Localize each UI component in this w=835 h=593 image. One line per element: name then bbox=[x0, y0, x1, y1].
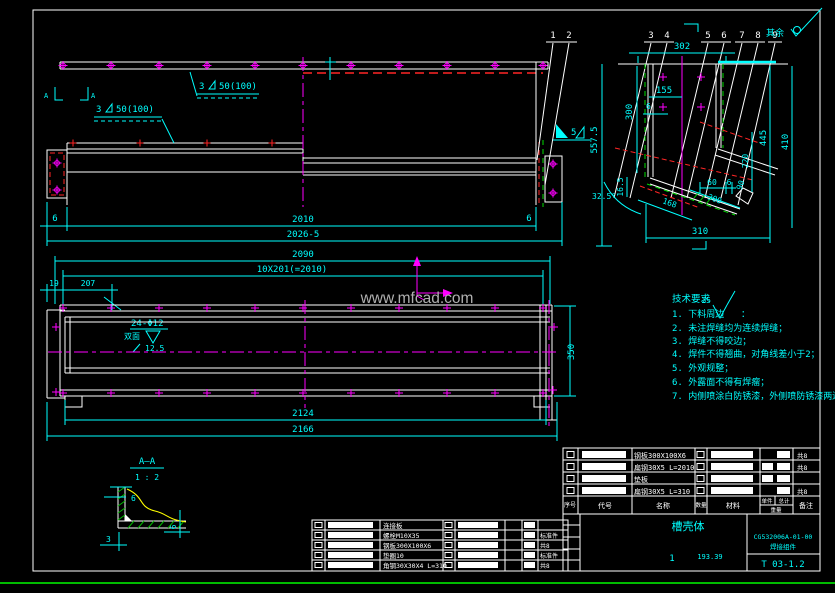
section-cut-marks: A A bbox=[44, 87, 96, 100]
detail-title: A—A bbox=[139, 457, 156, 467]
header-seq: 序号 bbox=[564, 501, 576, 509]
dim-bottom: 310 bbox=[692, 227, 708, 237]
plan-dimensions-top: 2090 10X201(=2010) 19 207 bbox=[40, 250, 550, 310]
bom-row: 角钢30X30X4 L=310共8 bbox=[315, 561, 550, 570]
dim-gap-left: 6 bbox=[52, 214, 57, 224]
bom-row: 连接板 bbox=[315, 521, 535, 530]
weld-a-size: 3 bbox=[96, 105, 101, 115]
plan-view: 2090 10X201(=2010) 19 207 24-Φ12 双面 12.5 bbox=[40, 250, 577, 441]
weld-b-spec: 50(100) bbox=[219, 82, 257, 92]
break-line bbox=[127, 489, 186, 522]
balloon-1: 1 bbox=[550, 31, 555, 41]
bom-name: 角钢30X30X4 L=310 bbox=[383, 561, 447, 570]
dim-6: 6 bbox=[727, 178, 732, 187]
balloon-3: 3 bbox=[648, 31, 653, 41]
weld-c-size: 5 bbox=[571, 128, 576, 138]
bom-name: 连接板 bbox=[383, 521, 403, 530]
dim-plan-inner: 2124 bbox=[292, 409, 314, 419]
weld-fillet bbox=[125, 514, 132, 521]
dim-155: 155 bbox=[656, 86, 672, 96]
sheet-number: T 03-1.2 bbox=[761, 560, 804, 570]
balloon-5: 5 bbox=[705, 31, 710, 41]
balloon-4: 4 bbox=[664, 31, 669, 41]
weld-callout-c: 5 bbox=[552, 124, 590, 140]
parts-list-row: 扁钢30X5 L=310共8 bbox=[567, 487, 808, 496]
countersink-icon bbox=[146, 331, 160, 343]
balloon-2: 2 bbox=[566, 31, 571, 41]
front-view: 3 50(100) 3 50(100) 5 A A bbox=[40, 57, 590, 246]
balloon-8: 8 bbox=[755, 31, 760, 41]
detail-scale: 1 : 2 bbox=[135, 473, 159, 482]
drawing-sheet: 3 50(100) 3 50(100) 5 A A bbox=[0, 0, 835, 593]
weight-value: 193.39 bbox=[697, 553, 722, 561]
dim-165: 16.5 bbox=[616, 177, 625, 196]
part-remark: 共8 bbox=[797, 451, 808, 460]
note-line: 7. 内侧喷涂白防锈漆，外侧喷防锈漆两遍。 bbox=[672, 390, 835, 402]
parts-list-row: 扁钢30X5 L=2010共8 bbox=[567, 463, 808, 472]
bom-name: 垫圈10 bbox=[383, 551, 404, 560]
section-label: A bbox=[91, 92, 96, 100]
dim-detail-3: 3 bbox=[106, 535, 111, 544]
dim-220: 220 bbox=[741, 154, 750, 169]
dim-445: 445 bbox=[759, 130, 769, 146]
front-dimensions: 2010 2026-5 6 6 bbox=[40, 202, 562, 246]
part-name: 扁钢30X5 L=2010 bbox=[634, 463, 694, 472]
part-remark: 共8 bbox=[797, 487, 808, 496]
dim-top-width: 302 bbox=[674, 42, 690, 52]
surface-finish-prefix: 其余 bbox=[766, 27, 784, 39]
dim-angle: 32.5° bbox=[592, 192, 616, 201]
surface-finish-note: 其余 bbox=[766, 8, 822, 39]
bom-row: 钢板300X100X6共8 bbox=[315, 541, 550, 550]
cad-canvas: 3 50(100) 3 50(100) 5 A A bbox=[0, 0, 835, 593]
weld-symbol-icon bbox=[106, 104, 112, 112]
part-name: 扁钢30X5 L=310 bbox=[634, 487, 690, 496]
section-label: A bbox=[44, 92, 49, 100]
dim-60: 60 bbox=[707, 178, 717, 187]
weld-a-spec: 50(100) bbox=[116, 105, 154, 115]
drawing-subtitle: 焊接组件 bbox=[770, 542, 797, 551]
dim-gap-right: 6 bbox=[526, 214, 531, 224]
parts-list-row: 钢板300X100X6共8 bbox=[567, 451, 808, 460]
header-remark: 备注 bbox=[799, 501, 813, 510]
dim-total-height: 557.5 bbox=[590, 126, 600, 153]
header-code: 代号 bbox=[598, 501, 612, 510]
part-remark: 共8 bbox=[797, 463, 808, 472]
title-block: 序号 代号 名称 数量 材料 单件 总计 重量 备注 钢板300X100X6共8… bbox=[563, 448, 820, 571]
note-line: 5. 外观规整； bbox=[672, 362, 733, 374]
hole-callout-side: 双面 bbox=[124, 332, 140, 341]
bom-remark: 共8 bbox=[540, 562, 550, 570]
left-end-plate bbox=[47, 150, 67, 198]
dim-wall: 6 bbox=[646, 102, 651, 111]
dim-plan-outer: 2166 bbox=[292, 425, 314, 435]
dim-plan-overall: 2090 bbox=[292, 250, 314, 260]
header-unit-weight: 单件 bbox=[761, 497, 773, 505]
dim-168: 168 bbox=[661, 196, 678, 209]
balloon-6: 6 bbox=[721, 31, 726, 41]
dim-end-offset: 19 bbox=[49, 279, 59, 288]
note-1-suffix: ： bbox=[741, 310, 750, 320]
dim-plan-pitch: 10X201(=2010) bbox=[257, 265, 327, 275]
bom-name: 钢板300X100X6 bbox=[383, 541, 431, 550]
note-line: 2. 未注焊缝均为连续焊缝； bbox=[672, 322, 787, 334]
weld-symbol-icon bbox=[556, 124, 568, 138]
dim-front-inner: 2010 bbox=[292, 215, 314, 225]
bom-remark: 标准件 bbox=[540, 532, 558, 540]
weld-callout-b: 3 50(100) bbox=[190, 72, 259, 98]
header-material: 材料 bbox=[726, 501, 740, 510]
header-weight: 重量 bbox=[770, 506, 782, 514]
dim-410: 410 bbox=[781, 134, 791, 150]
header-total-weight: 总计 bbox=[778, 497, 790, 505]
dim-first-pitch: 207 bbox=[81, 279, 96, 288]
note-line: 6. 外露面不得有焊瘤； bbox=[672, 376, 769, 388]
part-name: 垫板 bbox=[634, 475, 648, 484]
header-qty: 数量 bbox=[695, 501, 707, 509]
weld-callout-a: 3 50(100) bbox=[94, 104, 174, 143]
bom-name: 螺栓M10X35 bbox=[383, 531, 420, 540]
tech-notes: 技术要求 1. 下料周边 25 ： 2. 未注焊缝均为连续焊缝； 3. 焊缝不得… bbox=[672, 291, 835, 402]
bom-table: 连接板 螺栓M10X35标准件 钢板300X100X6共8 垫圈10标准件 角钢… bbox=[312, 520, 568, 571]
bom-remark: 共8 bbox=[540, 542, 550, 550]
section-dimensions: 302 155 300 6 445 410 557.5 16.5 32.5° 1… bbox=[590, 42, 792, 246]
quantity-value: 1 bbox=[669, 554, 674, 564]
hole-callout-text: 24-Φ12 bbox=[131, 319, 164, 329]
drawing-number: CG532006A-01-00 bbox=[754, 533, 813, 541]
note-1-prefix: 1. 下料周边 bbox=[672, 308, 724, 320]
weld-b-size: 3 bbox=[199, 82, 204, 92]
part-title: 槽壳体 bbox=[672, 519, 705, 533]
header-name: 名称 bbox=[656, 501, 670, 510]
watermark-text: www.mfcad.com bbox=[360, 290, 474, 307]
note-line: 4. 焊件不得翘曲，对角线差小于2； bbox=[672, 348, 820, 360]
dim-front-overall: 2026-5 bbox=[287, 230, 320, 240]
parts-list-row: 垫板 bbox=[567, 475, 790, 484]
part-name: 钢板300X100X6 bbox=[634, 451, 686, 460]
detail-aa: A—A 1 : 2 6 6 3 bbox=[100, 457, 190, 551]
note-roughness-value: 25 bbox=[701, 296, 711, 305]
dim-plan-width: 350 bbox=[567, 344, 577, 360]
note-line: 3. 焊缝不得咬边； bbox=[672, 335, 751, 347]
weld-symbol-icon bbox=[209, 81, 215, 89]
hatch-pattern bbox=[118, 487, 184, 528]
hole-callout: 24-Φ12 双面 12.5 bbox=[124, 319, 168, 353]
dim-detail-wall: 6 bbox=[131, 494, 136, 503]
dim-depth: 300 bbox=[625, 104, 635, 120]
balloon-callouts: 1 2 3 4 5 6 7 8 9 bbox=[537, 31, 782, 205]
dim-detail-floor: 6 bbox=[169, 524, 178, 529]
bom-remark: 标准件 bbox=[540, 552, 558, 560]
balloon-7: 7 bbox=[739, 31, 744, 41]
